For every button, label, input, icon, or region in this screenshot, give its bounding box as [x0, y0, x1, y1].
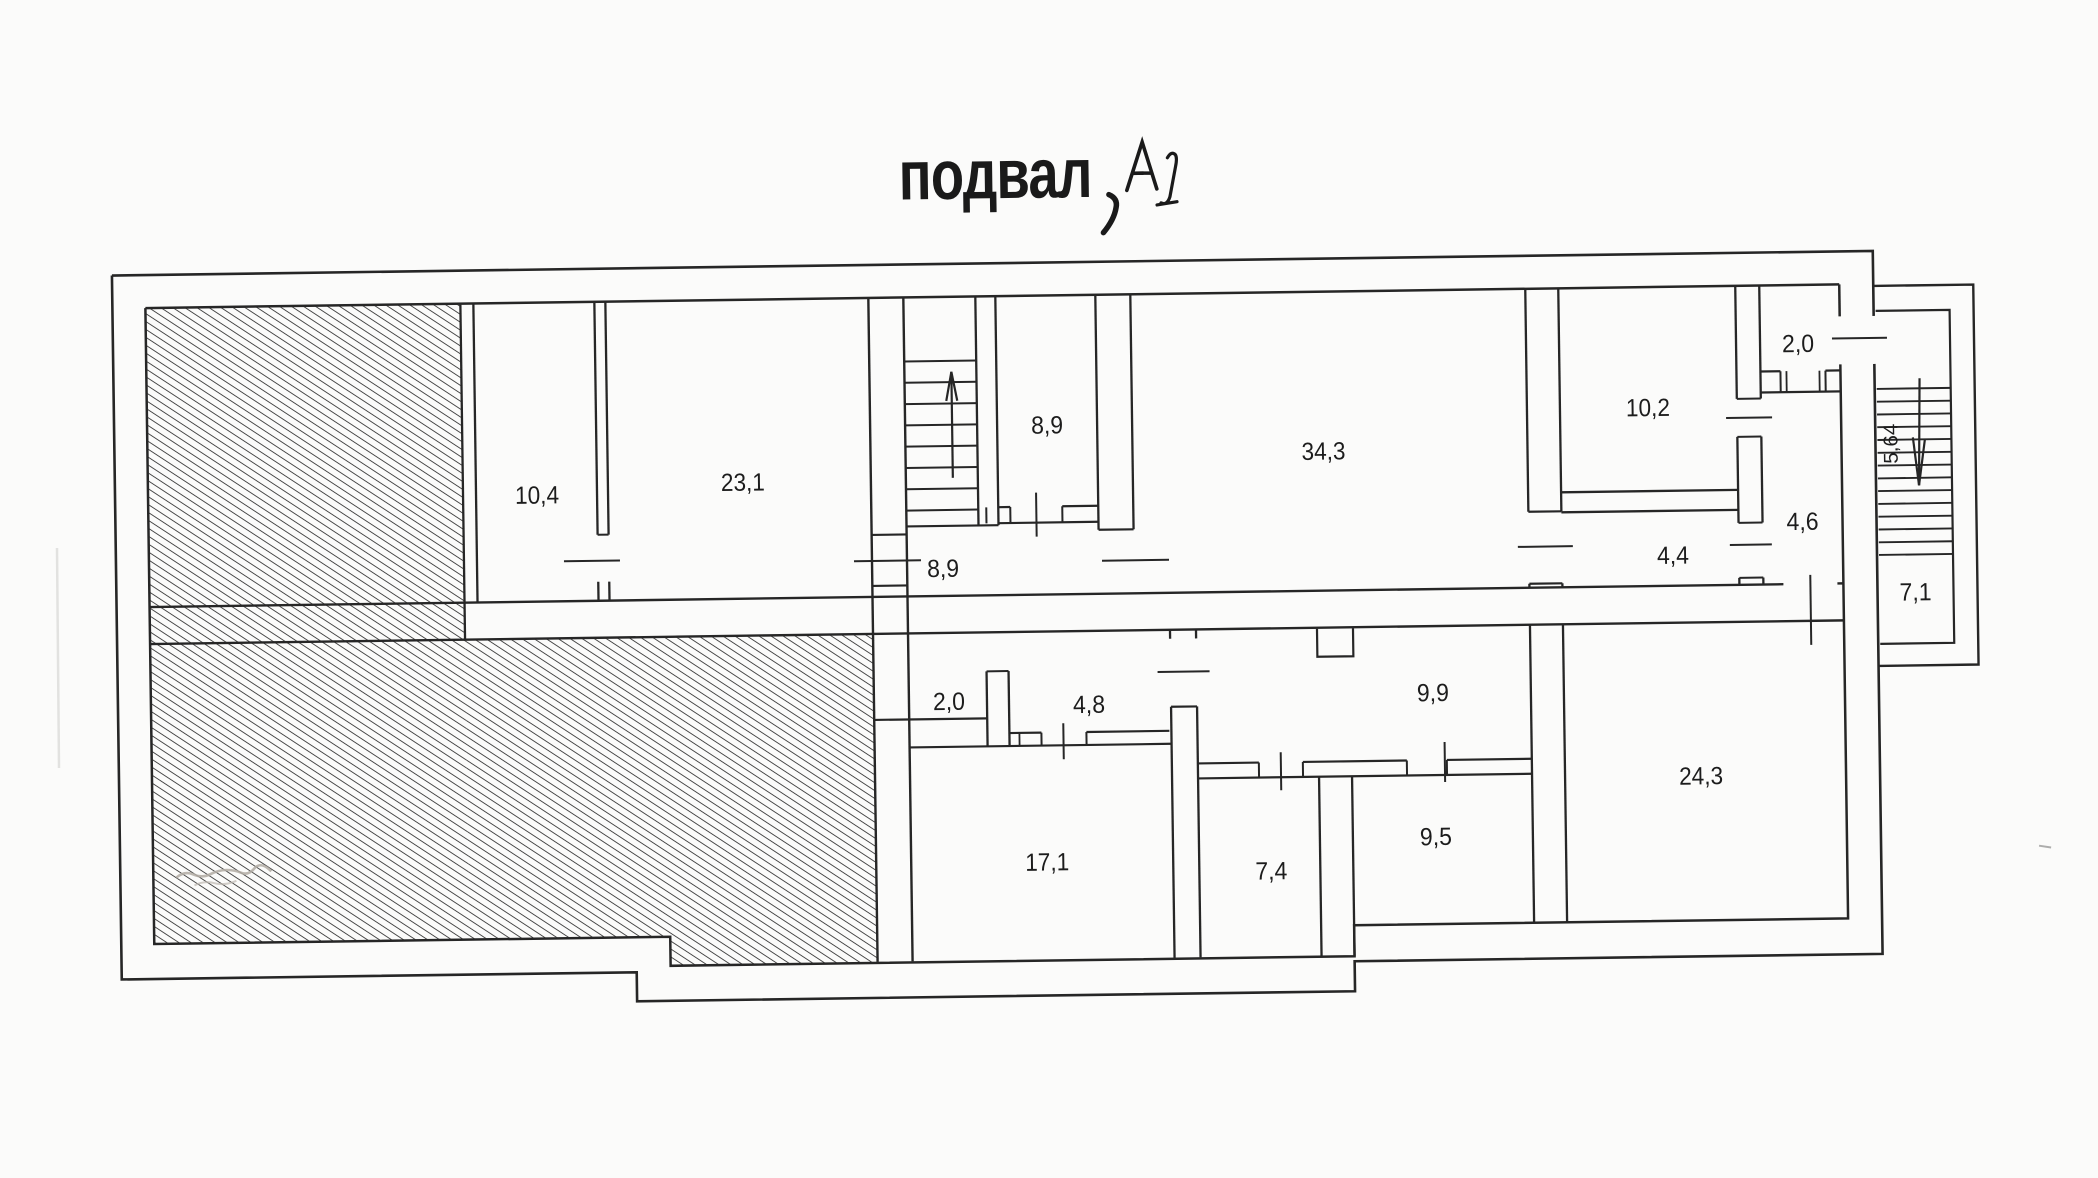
svg-text:5,64: 5,64 — [1880, 424, 1903, 464]
svg-text:2,0: 2,0 — [933, 688, 965, 716]
svg-text:4,6: 4,6 — [1786, 508, 1818, 536]
svg-text:4,8: 4,8 — [1073, 691, 1105, 719]
svg-text:10,4: 10,4 — [515, 481, 559, 510]
svg-text:24,3: 24,3 — [1679, 762, 1723, 791]
svg-text:8,9: 8,9 — [927, 555, 959, 583]
svg-text:подвал: подвал — [898, 134, 1092, 215]
svg-text:17,1: 17,1 — [1025, 848, 1069, 877]
svg-text:34,3: 34,3 — [1301, 437, 1345, 466]
svg-text:10,2: 10,2 — [1626, 394, 1670, 423]
svg-text:7,1: 7,1 — [1899, 578, 1931, 606]
svg-text:9,9: 9,9 — [1417, 679, 1449, 707]
svg-text:8,9: 8,9 — [1031, 411, 1063, 439]
svg-text:23,1: 23,1 — [721, 468, 765, 497]
svg-text:4,4: 4,4 — [1657, 542, 1689, 570]
svg-text:2,0: 2,0 — [1782, 330, 1814, 358]
svg-text:9,5: 9,5 — [1420, 823, 1452, 851]
svg-text:7,4: 7,4 — [1255, 857, 1287, 885]
